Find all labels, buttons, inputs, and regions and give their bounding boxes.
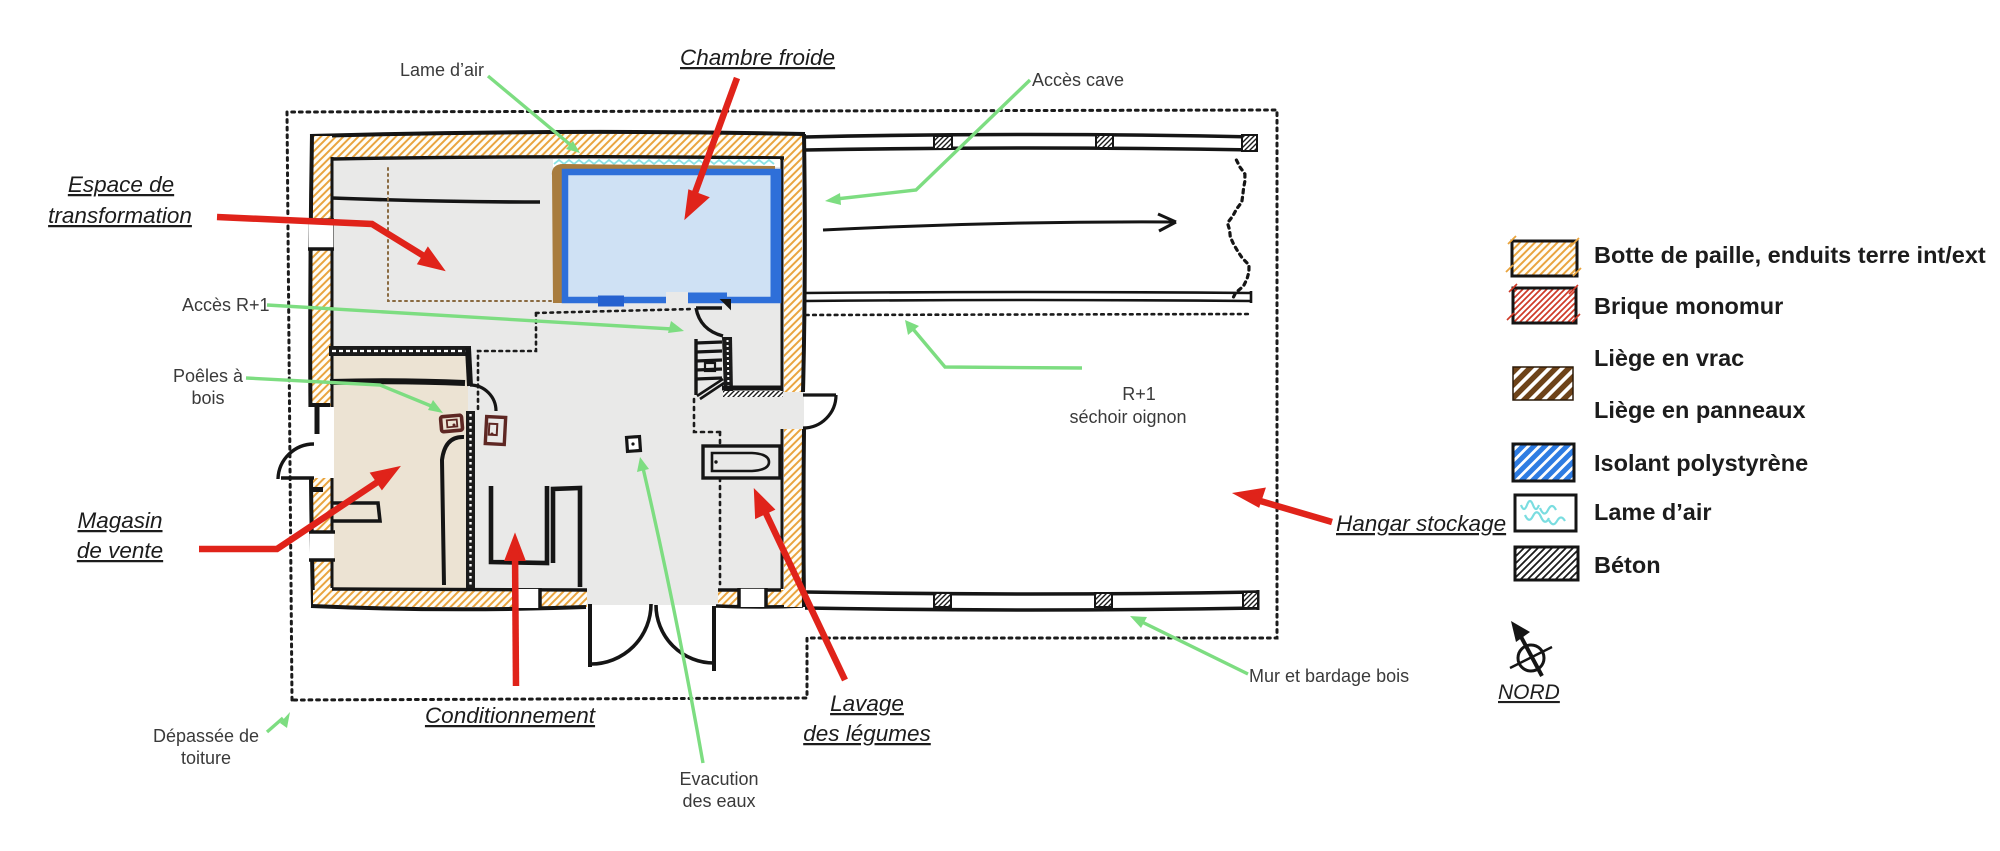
svg-text:Béton: Béton (1594, 552, 1661, 578)
svg-text:Accès cave: Accès cave (1032, 70, 1124, 90)
svg-text:Lame d’air: Lame d’air (1594, 499, 1712, 525)
svg-text:Hangar stockage: Hangar stockage (1336, 511, 1506, 536)
svg-text:transformation: transformation (48, 203, 192, 228)
svg-text:des eaux: des eaux (682, 791, 755, 811)
svg-text:Espace de: Espace de (68, 172, 174, 197)
svg-text:Lavage: Lavage (830, 691, 904, 716)
svg-text:Liège en panneaux: Liège en panneaux (1594, 397, 1806, 423)
svg-text:Conditionnement: Conditionnement (425, 703, 597, 728)
svg-text:de vente: de vente (77, 538, 163, 563)
svg-text:bois: bois (191, 388, 224, 408)
svg-text:Evacution: Evacution (679, 769, 758, 789)
svg-text:Accès R+1: Accès R+1 (182, 295, 270, 315)
svg-text:R+1: R+1 (1122, 384, 1156, 404)
svg-text:Mur et bardage bois: Mur et bardage bois (1249, 666, 1409, 686)
svg-text:Liège en vrac: Liège en vrac (1594, 345, 1744, 371)
svg-text:NORD: NORD (1498, 681, 1560, 704)
svg-text:Botte de paille, enduits terre: Botte de paille, enduits terre int/ext (1594, 242, 1986, 268)
svg-text:toiture: toiture (181, 748, 231, 768)
svg-text:Brique monomur: Brique monomur (1594, 293, 1783, 319)
svg-text:des légumes: des légumes (803, 721, 931, 746)
svg-text:Chambre froide: Chambre froide (680, 45, 835, 70)
svg-text:Poêles à: Poêles à (173, 366, 244, 386)
svg-text:Isolant polystyrène: Isolant polystyrène (1594, 450, 1808, 476)
svg-text:Lame d’air: Lame d’air (400, 60, 484, 80)
svg-text:Dépassée de: Dépassée de (153, 726, 259, 746)
svg-text:Magasin: Magasin (77, 508, 162, 533)
svg-text:séchoir oignon: séchoir oignon (1069, 407, 1186, 427)
